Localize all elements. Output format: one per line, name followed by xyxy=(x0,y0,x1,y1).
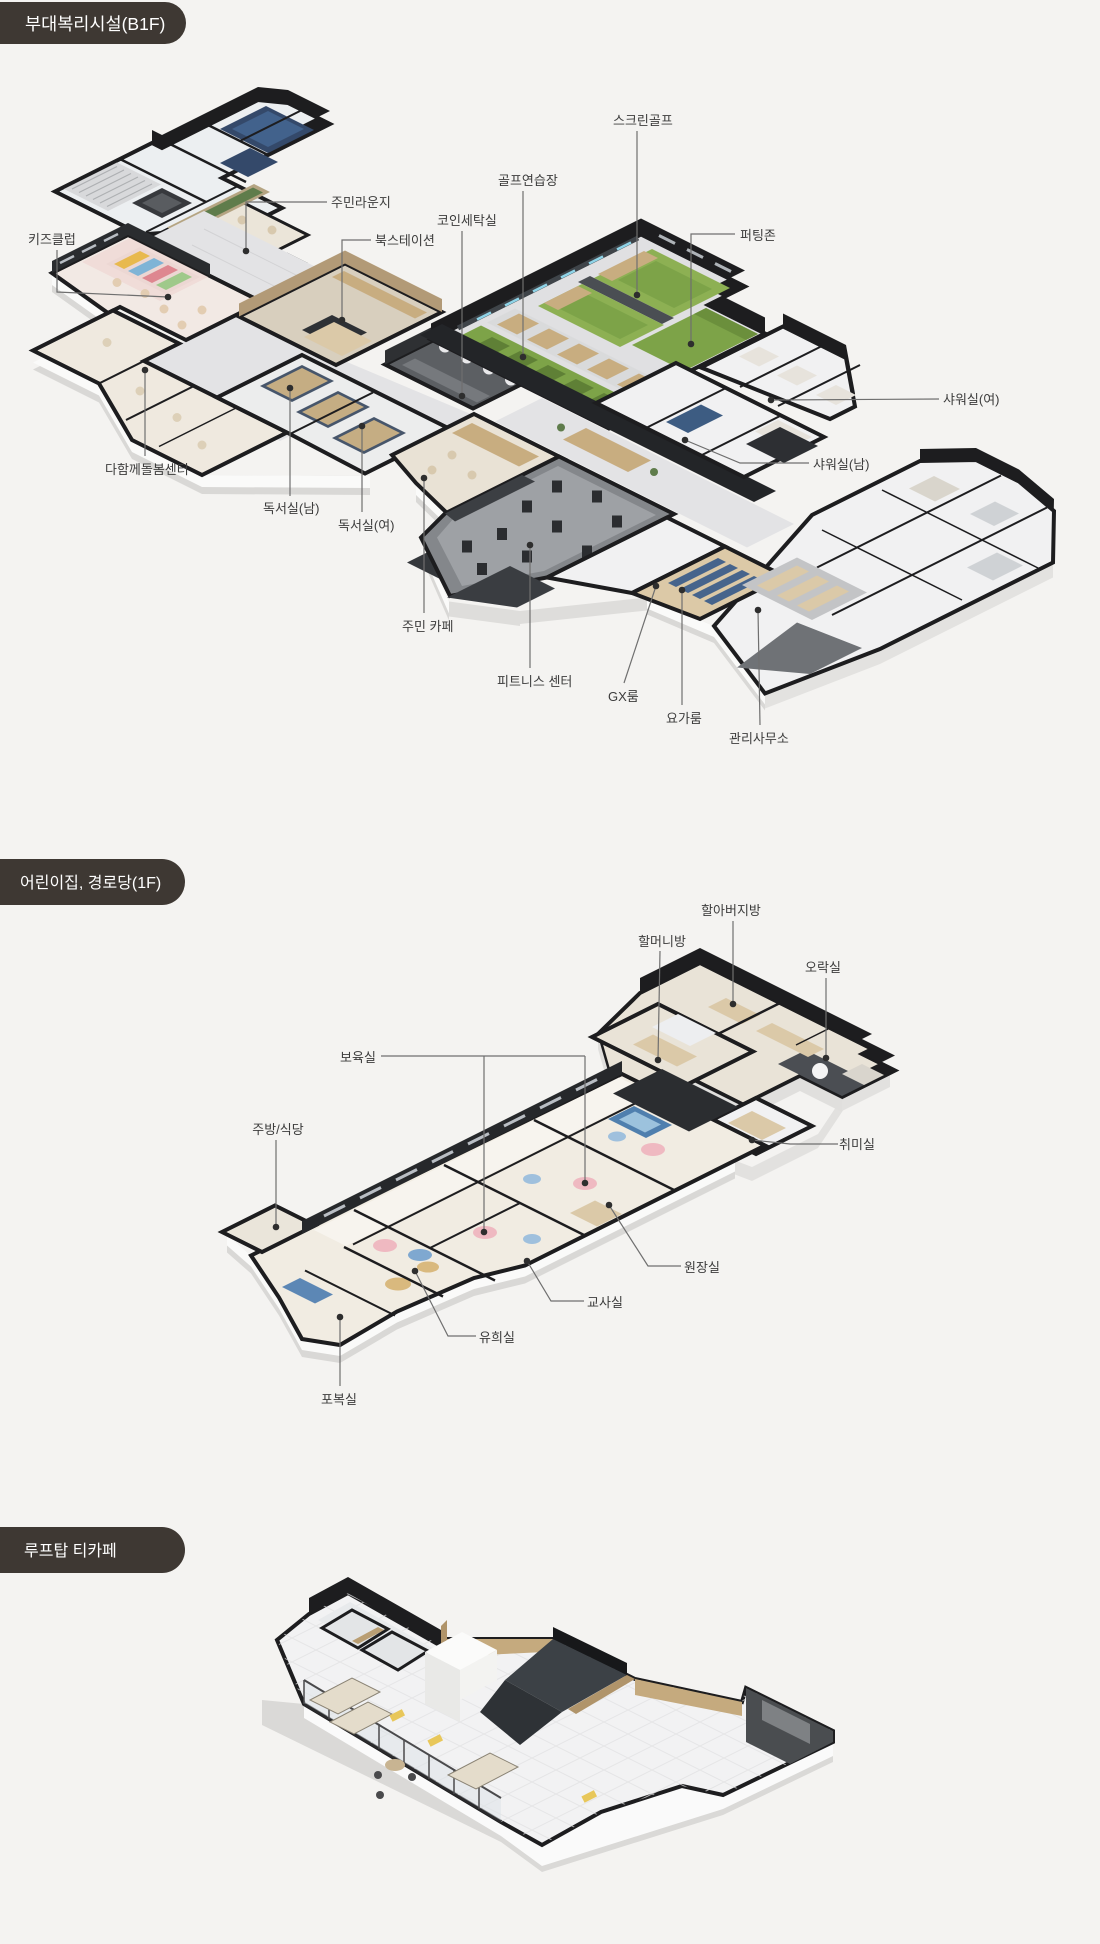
svg-text:키즈클럽: 키즈클럽 xyxy=(28,232,76,247)
svg-text:다함께돌봄센터: 다함께돌봄센터 xyxy=(105,462,189,477)
svg-text:취미실: 취미실 xyxy=(839,1137,875,1152)
svg-text:독서실(남): 독서실(남) xyxy=(263,501,320,516)
svg-text:오락실: 오락실 xyxy=(805,960,841,975)
svg-text:어린이집, 경로당(1F): 어린이집, 경로당(1F) xyxy=(20,874,161,892)
svg-text:부대복리시설(B1F): 부대복리시설(B1F) xyxy=(25,14,165,34)
svg-text:보육실: 보육실 xyxy=(340,1050,376,1065)
svg-text:북스테이션: 북스테이션 xyxy=(375,233,435,248)
svg-text:피트니스 센터: 피트니스 센터 xyxy=(497,674,572,689)
svg-text:관리사무소: 관리사무소 xyxy=(729,731,789,746)
svg-text:유희실: 유희실 xyxy=(479,1330,515,1345)
svg-text:골프연습장: 골프연습장 xyxy=(498,173,558,188)
svg-text:샤워실(남): 샤워실(남) xyxy=(813,457,870,472)
svg-text:요가룸: 요가룸 xyxy=(666,711,702,726)
svg-text:주방/식당: 주방/식당 xyxy=(252,1122,303,1137)
svg-text:할머니방: 할머니방 xyxy=(638,934,686,949)
svg-text:주민 카페: 주민 카페 xyxy=(402,619,453,634)
svg-text:샤워실(여): 샤워실(여) xyxy=(943,392,1000,407)
svg-text:원장실: 원장실 xyxy=(684,1260,720,1275)
svg-text:할아버지방: 할아버지방 xyxy=(701,903,761,918)
svg-text:교사실: 교사실 xyxy=(587,1295,623,1310)
svg-text:GX룸: GX룸 xyxy=(608,689,639,704)
svg-text:포복실: 포복실 xyxy=(321,1392,357,1407)
svg-text:스크린골프: 스크린골프 xyxy=(613,113,673,128)
svg-text:독서실(여): 독서실(여) xyxy=(338,518,395,533)
svg-text:루프탑 티카페: 루프탑 티카페 xyxy=(24,1542,117,1560)
svg-text:퍼팅존: 퍼팅존 xyxy=(740,228,776,243)
svg-text:코인세탁실: 코인세탁실 xyxy=(437,213,497,228)
svg-text:주민라운지: 주민라운지 xyxy=(331,195,391,210)
